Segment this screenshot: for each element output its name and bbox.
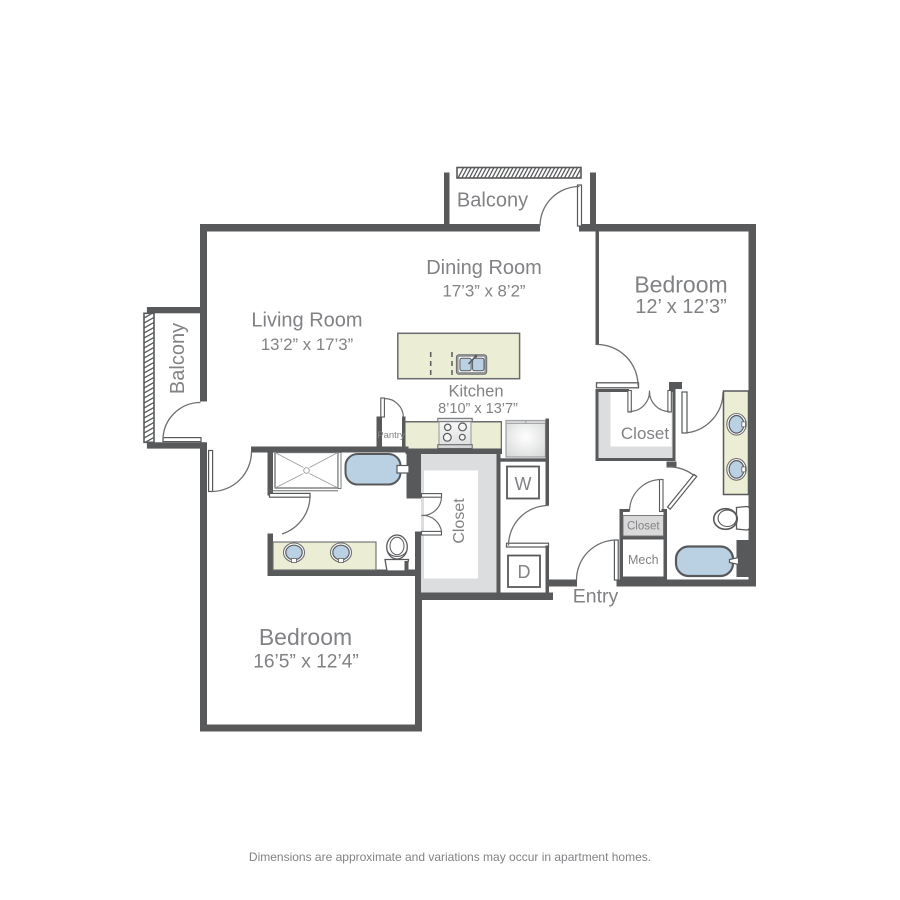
- svg-text:Mech: Mech: [628, 553, 659, 567]
- svg-text:Closet: Closet: [621, 424, 669, 443]
- svg-text:Closet: Closet: [451, 498, 468, 544]
- svg-text:17’3” x 8’2”: 17’3” x 8’2”: [442, 282, 525, 301]
- svg-text:16’5” x 12’4”: 16’5” x 12’4”: [253, 652, 359, 673]
- svg-text:Living Room: Living Room: [251, 310, 362, 332]
- svg-text:Balcony: Balcony: [457, 190, 528, 212]
- svg-text:Entry: Entry: [573, 586, 619, 608]
- svg-text:Bedroom: Bedroom: [634, 272, 727, 298]
- svg-text:8’10” x 13’7”: 8’10” x 13’7”: [438, 401, 518, 417]
- svg-text:D: D: [518, 562, 531, 582]
- svg-text:Dimensions are approximate and: Dimensions are approximate and variation…: [249, 850, 651, 864]
- svg-text:Bedroom: Bedroom: [259, 624, 352, 650]
- svg-text:12’ x 12’3”: 12’ x 12’3”: [635, 296, 727, 318]
- svg-text:Closet: Closet: [627, 521, 660, 533]
- svg-text:Balcony: Balcony: [167, 323, 189, 394]
- svg-text:13’2” x 17’3”: 13’2” x 17’3”: [261, 335, 353, 354]
- svg-text:Kitchen: Kitchen: [448, 383, 503, 401]
- svg-text:Pantry: Pantry: [377, 430, 405, 441]
- svg-text:Dining Room: Dining Room: [426, 257, 542, 279]
- svg-text:W: W: [515, 474, 532, 494]
